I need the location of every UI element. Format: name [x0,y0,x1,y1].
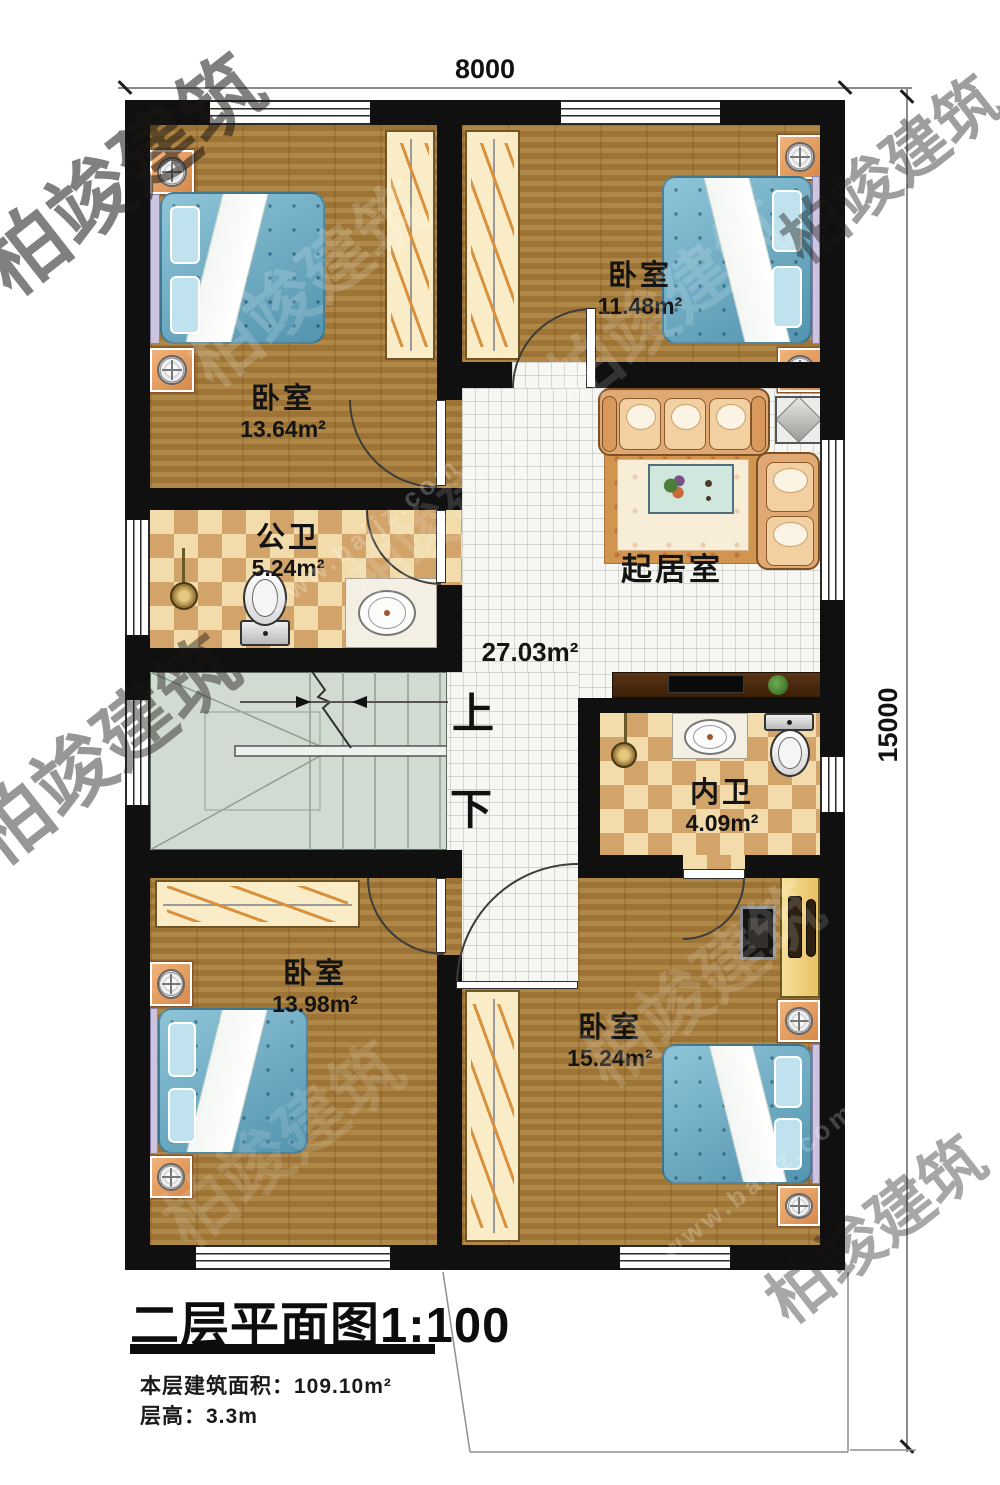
room-label-bedroom-bottom-left: 卧室 13.98m² [240,958,390,1018]
pillow [168,1088,196,1143]
room-area: 11.48m² [565,293,715,319]
wall [820,100,845,440]
lamp-icon [785,142,815,172]
desk-item [806,899,816,957]
stair-arrow-icon [296,696,311,708]
door-leaf [456,981,578,989]
sofa-cushion [709,398,751,450]
wall [592,362,845,388]
window [210,100,370,125]
room-area: 4.09m² [647,810,797,836]
room-area: 13.98m² [240,991,390,1017]
wall [820,812,845,1270]
window [820,757,845,812]
window [561,100,720,125]
room-name: 卧室 [535,1012,685,1045]
pillow [170,206,200,264]
lamp-icon [157,969,185,999]
double-bed [158,1008,308,1154]
lamp-icon [157,1163,185,1191]
door-leaf [586,308,596,388]
bed-headboard [812,1044,820,1184]
sofa-cushion [766,462,814,512]
shower-icon [170,582,198,610]
stair-arrow-icon [352,696,367,708]
sink-icon [684,719,736,755]
pillow [774,1118,802,1170]
nightstand [150,150,194,194]
bed-headboard [812,176,820,344]
bed-headboard [150,194,160,344]
tv-icon [668,675,744,693]
shower-icon [611,742,637,768]
wall [745,855,820,878]
wall [125,850,462,878]
desk [780,872,820,998]
room-label-bedroom-top-right: 卧室 11.48m² [565,260,715,320]
window [125,700,150,805]
dimension-line-right [906,88,908,1452]
wall [820,600,845,757]
sofa-cushion [766,516,814,566]
pillow [170,276,200,334]
sink-icon [358,590,416,636]
pillow [168,1022,196,1077]
room-name: 公卫 [213,522,363,555]
stairs-up-label: 上 [452,680,494,741]
room-area: 15.24m² [535,1045,685,1071]
pillow [772,266,802,328]
wall [125,100,150,520]
stairs-down-label: 下 [450,776,492,837]
three-seat-sofa [598,388,770,456]
pillow [774,1056,802,1108]
wall [125,488,462,510]
room-area: 5.24m² [213,555,363,581]
sofa-cushion [664,398,706,450]
wall [125,1245,196,1270]
wardrobe [465,990,520,1242]
door-leaf [683,869,745,879]
plant-icon [768,675,788,695]
living-area-label: 27.03m² [455,638,605,668]
stair-direction-line [240,701,448,703]
bed-blanket [184,1008,269,1154]
wall [125,648,462,672]
shower-stem [182,548,185,586]
wall [437,955,462,1245]
sofa-arm [602,396,617,452]
shower-stem [624,713,627,745]
room-label-living: 起居室 [597,552,747,588]
title-underline [130,1344,435,1354]
window [125,520,150,635]
nightstand [150,962,192,1006]
nightstand [778,135,822,179]
lamp-icon [157,157,187,187]
room-name: 起居室 [597,552,747,588]
nightstand [778,1186,820,1226]
sofa-arm [751,396,766,452]
floor-height-note: 层高：3.3m [140,1400,258,1430]
lamp-icon [157,355,187,385]
door-leaf [436,400,446,486]
room-name: 卧室 [565,260,715,293]
room-name: 内卫 [647,777,797,810]
floor-plan-canvas: 卧室 13.64m² 卧室 11.48m² 公卫 5.24m² 起居室 27.0… [0,0,1000,1485]
wall [600,698,820,713]
room-label-bedroom-top-left: 卧室 13.64m² [208,383,358,443]
room-label-inner-bath: 内卫 4.09m² [647,777,797,837]
loveseat-sofa [756,452,820,570]
desk-item [788,896,802,958]
wall [437,362,512,388]
corner-side-table [775,396,823,444]
nightstand [778,1000,820,1042]
wall [370,100,561,125]
room-area: 27.03m² [455,638,605,668]
sofa-cushion [619,398,661,450]
wardrobe [465,130,520,360]
nightstand [150,1156,192,1198]
lamp-icon [785,1193,813,1219]
nightstand [150,348,194,392]
window [196,1245,390,1270]
dimension-label-width: 8000 [420,54,550,85]
toilet-icon [770,729,810,777]
wardrobe [155,880,360,928]
wardrobe [385,130,435,360]
door-leaf [436,878,446,953]
room-area: 13.64m² [208,416,358,442]
room-name: 卧室 [240,958,390,991]
floor-area-note: 本层建筑面积：109.10m² [140,1370,392,1400]
wall [437,125,462,400]
coffee-table [648,464,734,514]
wall [578,698,600,878]
dimension-line-top [118,87,912,89]
room-name: 卧室 [208,383,358,416]
tv-cabinet [740,906,776,960]
dimension-label-height: 15000 [873,675,903,775]
room-label-public-bath: 公卫 5.24m² [213,522,363,582]
lamp-icon [785,1007,813,1035]
wall [578,855,683,878]
window [820,440,845,600]
door-leaf [436,510,446,583]
bed-headboard [150,1008,158,1154]
double-bed [160,192,325,344]
room-label-bedroom-bottom-right: 卧室 15.24m² [535,1012,685,1072]
pillow [772,190,802,252]
